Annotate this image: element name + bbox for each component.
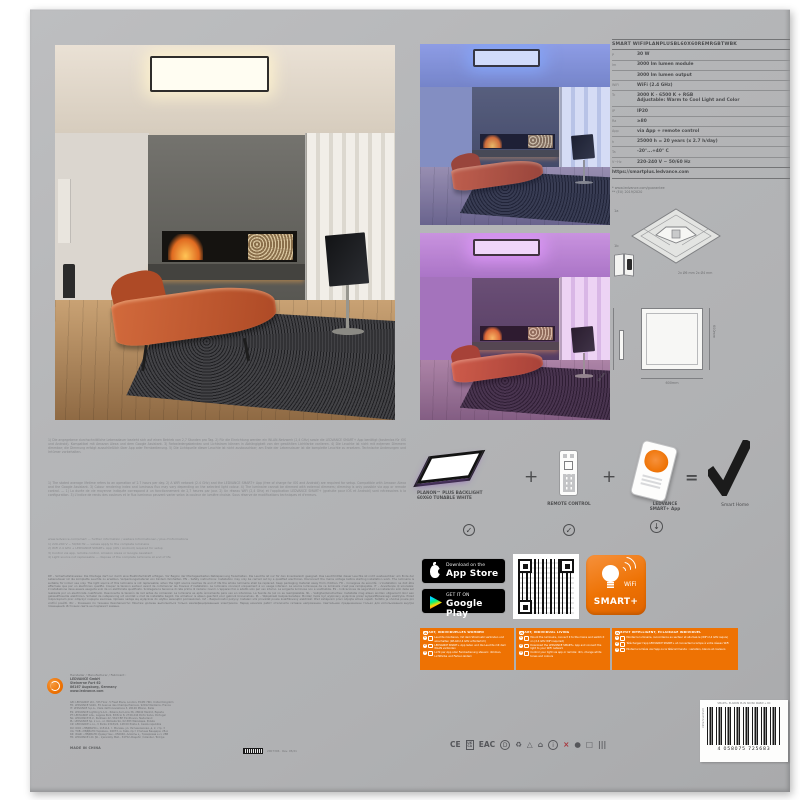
app-store-badge-top-text: Download on the xyxy=(446,563,485,568)
dimension-line-right xyxy=(709,308,710,370)
spec-row-voltage: V~Hz220-240 V ~ 50/60 Hz xyxy=(612,158,790,167)
screw-note: 2x Ø6 mm 2x Ø4 mm xyxy=(678,271,768,275)
mounting-diagram xyxy=(630,207,722,269)
plus-sign: + xyxy=(524,467,538,487)
barcode-bars xyxy=(707,707,781,745)
manual-info-mark xyxy=(627,259,632,270)
dimension-drawing-front xyxy=(641,308,703,370)
remote-top-buttons xyxy=(563,454,574,458)
packaging-triangle-icon: △ xyxy=(527,741,533,749)
spec-row-ambient-temp: Ta-20°...+40° C xyxy=(612,147,790,157)
control-icon xyxy=(620,648,624,652)
spec-row-ip: IPIP20 xyxy=(612,107,790,117)
control-icon xyxy=(428,651,432,655)
ambient-temp-icon: Ta xyxy=(612,149,637,154)
dimension-label-height: 600mm xyxy=(712,325,716,338)
google-play-icon xyxy=(428,594,442,610)
wifi-label: WiFi xyxy=(624,581,636,588)
dimension-line-bottom xyxy=(641,378,703,379)
color-temp-icon: Tc xyxy=(612,93,637,104)
recycling-icon: ♻ xyxy=(515,741,522,749)
google-play-badge-name: Google Play xyxy=(446,599,505,619)
spec-row-cri: Ra≥80 xyxy=(612,117,790,127)
lifestyle-photo-warm xyxy=(55,45,395,420)
equals-sign: = xyxy=(685,468,698,487)
phone-screen-lines xyxy=(642,474,662,480)
qr-finder-pattern xyxy=(518,559,532,573)
app-blob xyxy=(642,448,671,475)
ean-barcode-sticker: SMART+ PLANON PLUS 60X60 RGBW + RC 4 058… xyxy=(700,700,788,762)
approval-mark-icon: D xyxy=(500,740,510,750)
drawing-step-label: 1a xyxy=(614,209,619,213)
mount-icon xyxy=(524,636,528,640)
dot-mark-icon: ● xyxy=(574,741,581,749)
datamatrix-icon: ||| xyxy=(598,741,606,749)
drawing-step-label: 1b xyxy=(614,244,619,248)
qr-code xyxy=(513,554,579,619)
barcode-digits: 4 058075 725683 xyxy=(704,747,784,752)
google-play-badge: GET IT ON Google Play xyxy=(421,588,506,614)
apple-icon xyxy=(428,564,442,580)
manual-page-left xyxy=(614,253,624,276)
sticker-product-line: SMART+ PLANON PLUS 60X60 RGBW + RC xyxy=(704,702,784,705)
ce-mark-icon: CE xyxy=(450,741,461,749)
ledvance-logo xyxy=(47,678,63,694)
instruction-manual-icon xyxy=(614,252,635,278)
section-header: SMART, INDIVIDUAL LIVING xyxy=(519,631,569,635)
smartplus-url: https://smartplus.ledvance.com xyxy=(612,167,790,178)
spec-row-lifetime: h25000 h = 20 years (x 2.7 h/day) xyxy=(612,137,790,147)
app-store-badge: Download on the App Store xyxy=(421,558,506,584)
smartplus-label: SMART+ xyxy=(586,597,646,607)
smartplus-wifi-logo: WiFi SMART+ xyxy=(586,555,646,615)
mount-icon xyxy=(428,636,432,640)
smartphone-app-icon xyxy=(630,439,678,502)
made-in-label: MADE IN CHINA xyxy=(70,746,101,750)
spec-row-lumen-output: 3000 lm lumen output xyxy=(612,71,790,81)
spec-table: SMART WIFIPLANPLUSBL60X60REMRGBTWBK P30 … xyxy=(612,39,790,194)
ledvance-app-label: LEDVANCE SMART+ App xyxy=(628,501,702,512)
app-icon xyxy=(524,644,528,648)
app-store-badge-name: App Store xyxy=(446,569,498,579)
weee-bin-icon: □ xyxy=(586,741,593,749)
spec-row-lumen-module: lm3000 lm lumen module xyxy=(612,61,790,71)
dimension-line-left xyxy=(613,308,614,370)
photo-color-cast xyxy=(420,233,610,420)
remote-control-icon xyxy=(559,450,578,496)
control-icon xyxy=(524,651,528,655)
legal-paragraph-de: 1) Die angegebene durchschnittliche Lebe… xyxy=(48,438,406,454)
print-code-strip xyxy=(243,748,263,754)
panel-side-profile xyxy=(619,330,624,360)
packaging-back-panel: SMART WIFIPLANPLUSBL60X60REMRGBTWBK P30 … xyxy=(30,9,790,792)
product-model-code: SMART WIFIPLANPLUSBL60X60REMRGBTWBK xyxy=(612,40,790,50)
section-header: HABITAT INTELLIGENT, ÉCLAIRAGE INDIVIDUE… xyxy=(615,631,701,635)
planon-panel-icon xyxy=(416,450,483,484)
cri-icon: Ra xyxy=(612,119,637,124)
remote-button-grid xyxy=(563,474,575,492)
ip-icon: IP xyxy=(612,109,637,114)
barcode-side-code: 4058075725683 xyxy=(701,708,704,728)
section-header: SMART, INDIVIDUELLES WOHNEN xyxy=(423,631,484,635)
print-code-label: 2007306 · Rev. 05/21 xyxy=(267,749,297,753)
legal-paragraph-en-fr: 1) The stated average lifetime refers to… xyxy=(48,481,406,497)
quickstart-section-en: 2SMART, INDIVIDUAL LIVING 1Mount the lum… xyxy=(516,628,610,670)
power-icon: P xyxy=(612,52,637,57)
spec-row-color-temp: Tc3000 K - 6500 K + RGB Adjustable: Warm… xyxy=(612,91,790,107)
download-icon: ↓ xyxy=(650,520,663,533)
lifestyle-photo-blue xyxy=(420,44,610,225)
smart-home-check-icon xyxy=(708,440,750,496)
spec-row-wifi: WiFiWiFi (2.4 GHz) xyxy=(612,81,790,91)
spec-row-control: Appvia App + remote control xyxy=(612,127,790,137)
google-play-badge-top-text: GET IT ON xyxy=(446,593,469,598)
photo-color-cast xyxy=(420,44,610,225)
photo-color-cast xyxy=(55,45,395,420)
lifestyle-photo-purple xyxy=(420,233,610,420)
dimension-label-width: 600mm xyxy=(641,381,703,385)
remote-dpad xyxy=(564,461,573,470)
voltage-icon: V~Hz xyxy=(612,160,637,165)
certification-icons-row: CE UK CA EAC D ♻ △ ⌂ i × ● □ ||| xyxy=(450,740,716,750)
plus-sign: + xyxy=(602,467,616,487)
lumen-icon: lm xyxy=(612,62,637,67)
planon-panel-label: PLANON™ PLUS BACKLIGHT 60X60 TUNABLE WHI… xyxy=(417,490,533,501)
distributor-addresses: GB: LEDVANCE Ltd., 5th Floor, 5 Fleet Pl… xyxy=(70,701,410,739)
included-check-icon: ✓ xyxy=(463,524,475,536)
safety-instructions-multilingual: DE – Sicherheitshinweise: Die Montage da… xyxy=(48,575,414,608)
bulb-icon xyxy=(602,565,619,582)
read-manual-icon: i xyxy=(548,740,558,750)
app-icon xyxy=(620,642,624,646)
app-control-icon: App xyxy=(612,129,637,134)
indoor-use-icon: ⌂ xyxy=(538,741,543,749)
quickstart-section-fr: 3HABITAT INTELLIGENT, ÉCLAIRAGE INDIVIDU… xyxy=(612,628,738,670)
legal-footnote-lines: www.ledvance.com/smart — further informa… xyxy=(48,537,348,560)
app-icon xyxy=(428,644,432,648)
wifi-icon: WiFi xyxy=(612,83,637,88)
quickstart-section-de: 1SMART, INDIVIDUELLES WOHNEN 1Leuchte mo… xyxy=(420,628,514,670)
qr-finder-pattern xyxy=(518,600,532,614)
remote-control-label: REMOTE CONTROL xyxy=(536,501,602,506)
ukca-mark-icon: UK CA xyxy=(466,740,474,750)
lifetime-icon: h xyxy=(612,139,637,144)
eac-mark-icon: EAC xyxy=(479,741,495,749)
not-dimmable-icon: × xyxy=(563,741,569,749)
manufacturer-address: LEDVANCE GmbH Steinerne Furt 62 86167 Au… xyxy=(70,678,220,694)
spec-footnotes: * www.ledvance.com/guarantee ** (EU) 201… xyxy=(612,186,790,195)
included-check-icon: ✓ xyxy=(563,524,575,536)
mount-icon xyxy=(620,636,624,640)
spec-row-power: P30 W xyxy=(612,50,790,60)
qr-finder-pattern xyxy=(560,559,574,573)
smart-home-label: Smart Home xyxy=(706,503,764,508)
